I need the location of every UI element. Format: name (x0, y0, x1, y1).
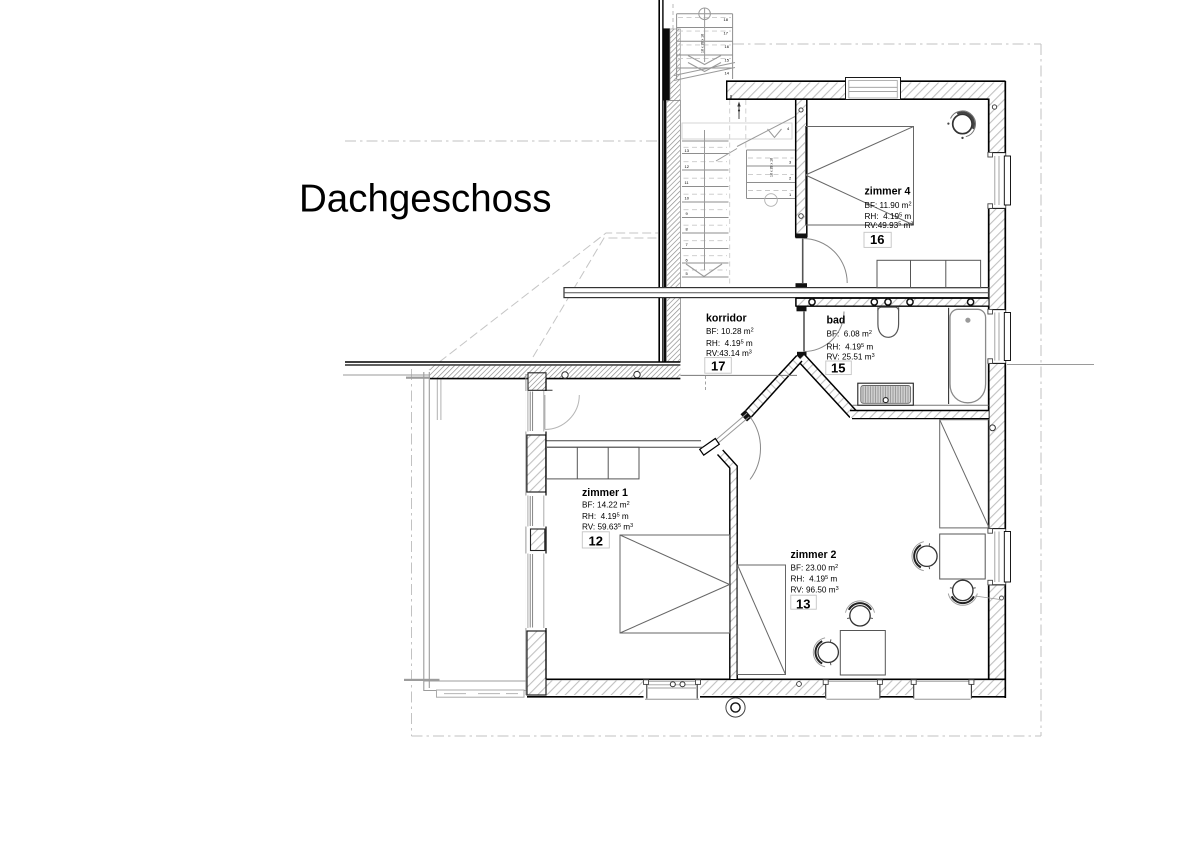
svg-text:RH: 4.195 m: RH: 4.195 m (706, 339, 753, 348)
svg-text:15: 15 (725, 58, 730, 63)
svg-text:BF: 23.00 m2: BF: 23.00 m2 (791, 564, 839, 573)
svg-text:RH: 4.195 m: RH: 4.195 m (582, 512, 629, 521)
svg-text:13: 13 (685, 148, 690, 153)
svg-text:BF: 6.08 m2: BF: 6.08 m2 (827, 330, 872, 339)
svg-text:Dachgeschoss: Dachgeschoss (299, 178, 552, 221)
svg-text:RV: 59.635 m3: RV: 59.635 m3 (582, 523, 633, 532)
svg-text:bad: bad (827, 315, 846, 327)
svg-text:18 x 28 x 18: 18 x 28 x 18 (701, 34, 705, 53)
svg-text:RH: 4.195 m: RH: 4.195 m (827, 343, 874, 352)
svg-text:16: 16 (725, 44, 730, 49)
svg-text:BF: 11.90 m2: BF: 11.90 m2 (865, 201, 912, 210)
svg-text:zimmer 4: zimmer 4 (865, 186, 911, 198)
svg-text:14: 14 (725, 71, 730, 76)
svg-text:zimmer 1: zimmer 1 (582, 487, 628, 499)
svg-text:12: 12 (685, 164, 690, 169)
svg-text:RV:49.935 m3: RV:49.935 m3 (865, 221, 914, 230)
svg-text:12: 12 (589, 533, 603, 548)
svg-text:RV: 96.50 m3: RV: 96.50 m3 (791, 586, 839, 595)
svg-text:16: 16 (870, 232, 884, 247)
svg-text:13: 13 (796, 596, 810, 611)
svg-text:15: 15 (831, 361, 845, 376)
svg-text:17: 17 (711, 359, 725, 374)
svg-text:18: 18 (724, 17, 729, 22)
svg-text:zimmer 2: zimmer 2 (791, 549, 837, 561)
svg-text:10: 10 (685, 196, 690, 201)
svg-text:BF: 10.28 m2: BF: 10.28 m2 (706, 327, 754, 336)
svg-text:korridor: korridor (706, 313, 747, 325)
svg-text:17: 17 (724, 31, 729, 36)
svg-text:BF: 14.22 m2: BF: 14.22 m2 (582, 501, 630, 510)
svg-text:RH: 4.195 m: RH: 4.195 m (865, 212, 912, 221)
svg-text:RH: 4.195 m: RH: 4.195 m (791, 575, 838, 584)
svg-text:RV:43.14 m3: RV:43.14 m3 (706, 349, 752, 358)
svg-text:18 x 28 x 18: 18 x 28 x 18 (770, 158, 774, 177)
